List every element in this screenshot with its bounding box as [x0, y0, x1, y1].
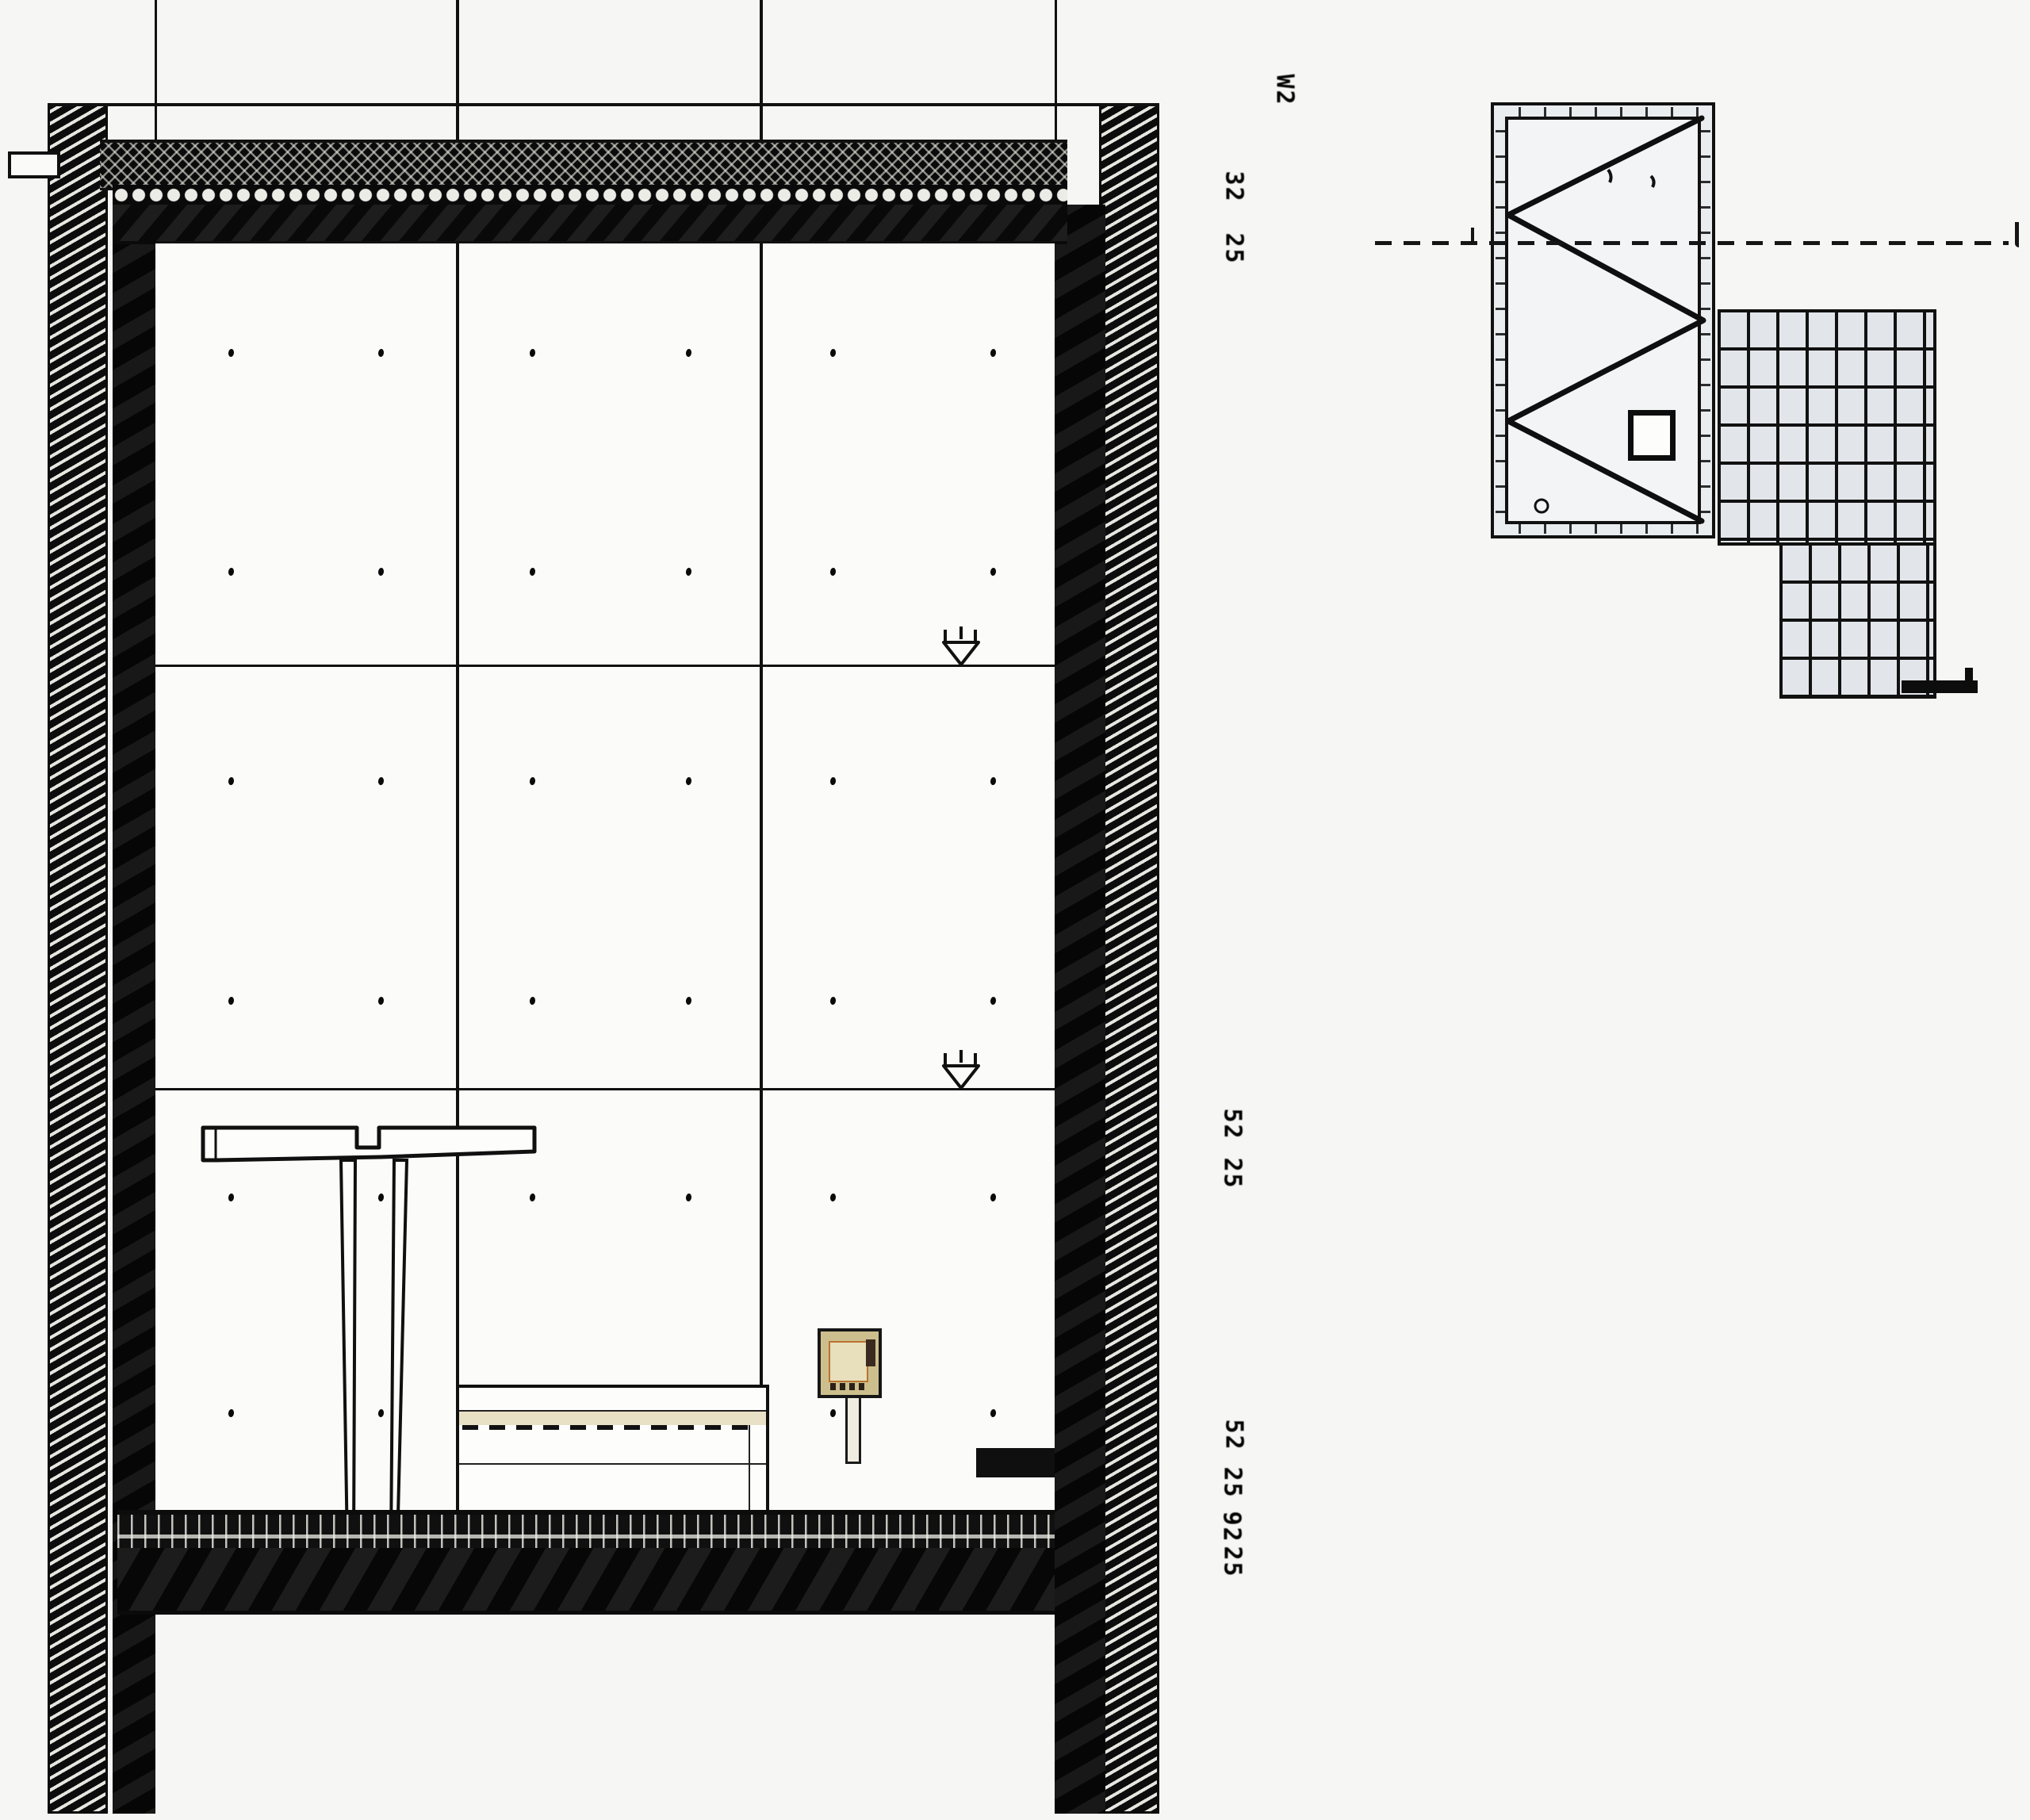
bench-edge-line — [459, 1463, 766, 1465]
dimension-label: 25 — [1219, 1466, 1247, 1500]
fixture-stem — [845, 1398, 861, 1464]
grid-line — [456, 0, 459, 141]
bench-wood-band — [459, 1412, 766, 1425]
level-marker-icon — [939, 1047, 983, 1091]
fixture-label-marks — [830, 1383, 865, 1390]
scupper-pipe — [8, 151, 60, 178]
dimension-label: 92 — [1218, 1510, 1246, 1545]
section-cut-line — [1375, 241, 2009, 245]
bench-inner-edge — [749, 1425, 750, 1515]
plan-step-riser — [1965, 668, 1973, 682]
panel-joint-horizontal — [155, 1088, 1055, 1090]
parapet-top-line — [48, 103, 1159, 106]
threshold-block — [976, 1448, 1055, 1477]
plan-brick-terrace-lower — [1779, 542, 1936, 699]
dimension-label: 25 — [1219, 1545, 1247, 1580]
plan-ridge-lines — [1491, 102, 1715, 538]
roof-concrete-slab — [113, 205, 1067, 244]
plan-skylight — [1628, 410, 1676, 461]
roof-insulation-layer — [113, 185, 1067, 205]
dimension-label: W2 — [1271, 73, 1299, 108]
plan-brick-terrace-upper — [1718, 309, 1936, 546]
fixture-face — [829, 1341, 868, 1382]
plan-small-circle-mark — [1535, 500, 1548, 512]
section-cut-left-tick — [1471, 228, 1474, 244]
dimension-label: 52 — [1219, 1107, 1247, 1142]
grid-line — [1055, 0, 1057, 141]
bench-dashed-line — [462, 1425, 755, 1430]
left-wall-outer-leaf — [48, 103, 108, 1814]
floor-concrete-slab — [117, 1548, 1055, 1615]
panel-joint-vertical — [760, 243, 763, 1510]
light-fixture — [818, 1328, 882, 1398]
fixture-bracket — [866, 1339, 875, 1366]
level-marker-icon — [939, 623, 983, 668]
floor-screed-mesh — [117, 1510, 1055, 1553]
drawing-sheet: W23225522552259225 — [0, 0, 2030, 1820]
right-wall-outer-leaf — [1099, 103, 1159, 1814]
bench — [456, 1385, 769, 1518]
plan-step-mark — [1902, 680, 1978, 693]
dimension-label: 52 — [1220, 1418, 1248, 1453]
dimension-label: 32 — [1220, 170, 1248, 205]
section-cut-right-hook — [2015, 222, 2019, 247]
roof-gravel-layer — [100, 140, 1067, 190]
right-wall-inner-leaf — [1055, 205, 1105, 1814]
grid-line — [760, 0, 763, 141]
dimension-label: 25 — [1219, 1156, 1247, 1191]
panel-joint-horizontal — [155, 665, 1055, 667]
grid-line — [155, 0, 157, 141]
dimension-label: 25 — [1220, 232, 1248, 266]
plan-small-marks — [1608, 170, 1654, 187]
